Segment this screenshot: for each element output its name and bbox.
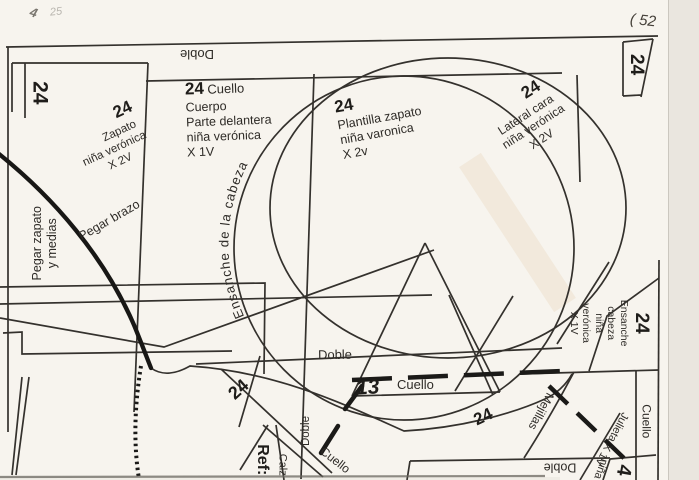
piece-heading: Cuello bbox=[207, 80, 244, 96]
doble-piece-line bbox=[196, 348, 562, 364]
size-number-top-right: 24 bbox=[625, 54, 648, 75]
mid-horizontal-b bbox=[0, 295, 432, 304]
label-doble-bottom: Doble bbox=[538, 459, 582, 474]
label-doble-mid: Doble bbox=[318, 347, 352, 363]
handwritten-page-number: ( 52 bbox=[629, 11, 657, 32]
label-cuello-right: Cuello bbox=[639, 399, 654, 443]
handwritten-mark: 25 bbox=[49, 5, 63, 20]
piece-name: verónica bbox=[580, 275, 592, 371]
label-ref: Ref: bbox=[252, 438, 272, 480]
piece-name: Ensanche bbox=[617, 275, 629, 371]
label-calzado: Calz bbox=[275, 443, 288, 480]
piece-name: cabeza bbox=[605, 275, 617, 371]
bottom-border bbox=[0, 476, 545, 477]
instruction-line: Pegar zapato bbox=[30, 173, 45, 313]
instruction-line: y medias bbox=[45, 173, 60, 313]
piece-label-cuerpo: 24 Cuello Cuerpo Parte delantera niña ve… bbox=[185, 77, 273, 162]
piece-size: 24 bbox=[185, 79, 205, 99]
label-pegar-zapato: Pegar zapato y medias bbox=[30, 173, 61, 313]
size-number-13: 13 bbox=[355, 374, 380, 401]
scan-smudge bbox=[470, 160, 565, 305]
top-border bbox=[6, 36, 658, 47]
piece-size: 24 bbox=[630, 275, 652, 371]
piece-qty: X 1V bbox=[568, 275, 580, 371]
piece-name: niña bbox=[593, 275, 605, 371]
size-number-left: 24 bbox=[27, 81, 53, 104]
bold-dashed-cuello-line bbox=[352, 371, 562, 380]
long-diagonal bbox=[0, 250, 434, 347]
left-bottom-edges bbox=[12, 377, 29, 475]
label-doble-top: Doble bbox=[164, 46, 214, 62]
pattern-linework: Ensanche de la cabeza bbox=[0, 0, 699, 480]
piece-label-ensanche-cabeza: 24 Ensanche cabeza niña verónica X 1V bbox=[568, 275, 652, 371]
dotted-seam-line bbox=[135, 366, 141, 479]
label-cuello-mid: Cuello bbox=[397, 377, 434, 393]
piece-qty: X 1V bbox=[187, 143, 273, 161]
pattern-sheet: Ensanche de la cabeza 4 25 ( 52 Doble 24… bbox=[0, 0, 699, 480]
